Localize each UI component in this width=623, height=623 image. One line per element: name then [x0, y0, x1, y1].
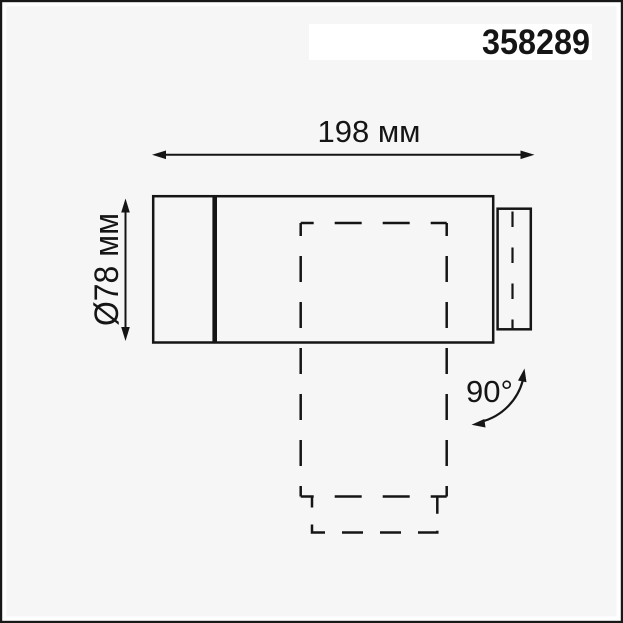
svg-text:Ø78 мм: Ø78 мм: [88, 213, 126, 326]
svg-text:358289: 358289: [482, 23, 590, 62]
svg-text:198 мм: 198 мм: [318, 114, 421, 149]
svg-text:90°: 90°: [466, 374, 513, 409]
